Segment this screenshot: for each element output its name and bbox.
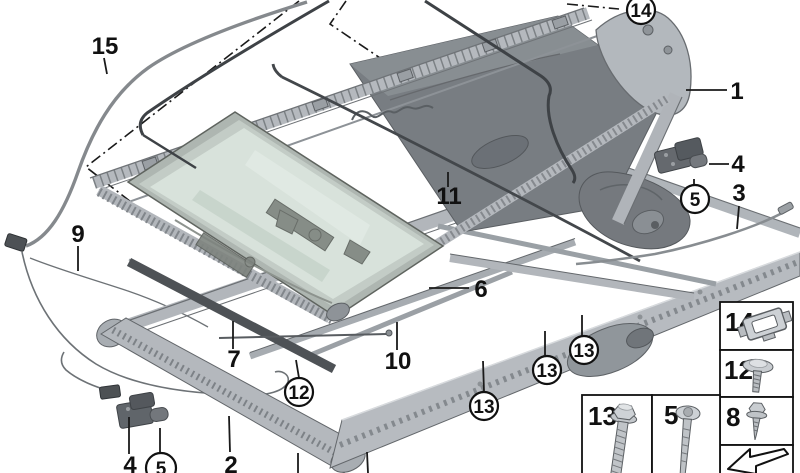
corner-bolt: [643, 25, 653, 35]
svg-text:13[interactable]: 13: [573, 341, 594, 362]
callout-5-bottom[interactable]: 5: [146, 453, 176, 473]
callout-11[interactable]: 11: [436, 183, 461, 210]
callout-14[interactable]: 14: [627, 0, 655, 24]
leader-2: [229, 416, 230, 452]
legend-label-8: 8: [726, 402, 740, 432]
screw-boss: [698, 290, 703, 295]
diagram-canvas: 15 9 14 1 4 5 3 11 6 7 10 12 13 13: [0, 0, 800, 473]
svg-text:12[interactable]: 12: [288, 383, 309, 404]
svg-text:5[interactable]: 5: [156, 459, 167, 473]
leader-13c: [483, 361, 484, 392]
motor-detail: [126, 407, 130, 411]
svg-text:13[interactable]: 13: [473, 397, 494, 418]
motor-detail: [664, 153, 668, 157]
callout-10[interactable]: 10: [385, 348, 412, 375]
motor-left-connector: [99, 385, 120, 400]
screw5-torx: [683, 407, 693, 417]
corner-bolt: [664, 46, 672, 54]
svg-text:13[interactable]: 13: [536, 361, 557, 382]
callout-2[interactable]: 2: [224, 452, 237, 473]
drive-housing-bolt: [651, 221, 659, 229]
callout-4-bottom[interactable]: 4: [123, 452, 137, 473]
screw-boss: [638, 315, 643, 320]
callout-12[interactable]: 12: [285, 378, 313, 406]
motor-detail: [671, 162, 675, 166]
callout-4-right[interactable]: 4: [731, 151, 745, 178]
callout-7[interactable]: 7: [227, 346, 240, 373]
callout-9[interactable]: 9: [71, 221, 84, 248]
leader-cut-2: [367, 452, 368, 473]
callout-5-right[interactable]: 5: [681, 185, 709, 213]
mechanism-pin: [309, 229, 321, 241]
callout-3[interactable]: 3: [732, 180, 745, 207]
mechanism-pin: [245, 257, 255, 267]
callout-13a[interactable]: 13: [570, 336, 598, 364]
callout-13b[interactable]: 13: [533, 356, 561, 384]
callout-13c[interactable]: 13: [470, 392, 498, 420]
callout-1[interactable]: 1: [730, 78, 743, 105]
guide-rod-tip: [386, 330, 392, 336]
callout-6[interactable]: 6: [474, 276, 487, 303]
sunroof-parts-diagram: 15 9 14 1 4 5 3 11 6 7 10 12 13 13: [0, 0, 800, 473]
screw-boss: [478, 382, 483, 387]
svg-text:5[interactable]: 5: [690, 190, 701, 211]
svg-text:14[interactable]: 14: [630, 1, 652, 22]
callout-15[interactable]: 15: [92, 33, 119, 60]
